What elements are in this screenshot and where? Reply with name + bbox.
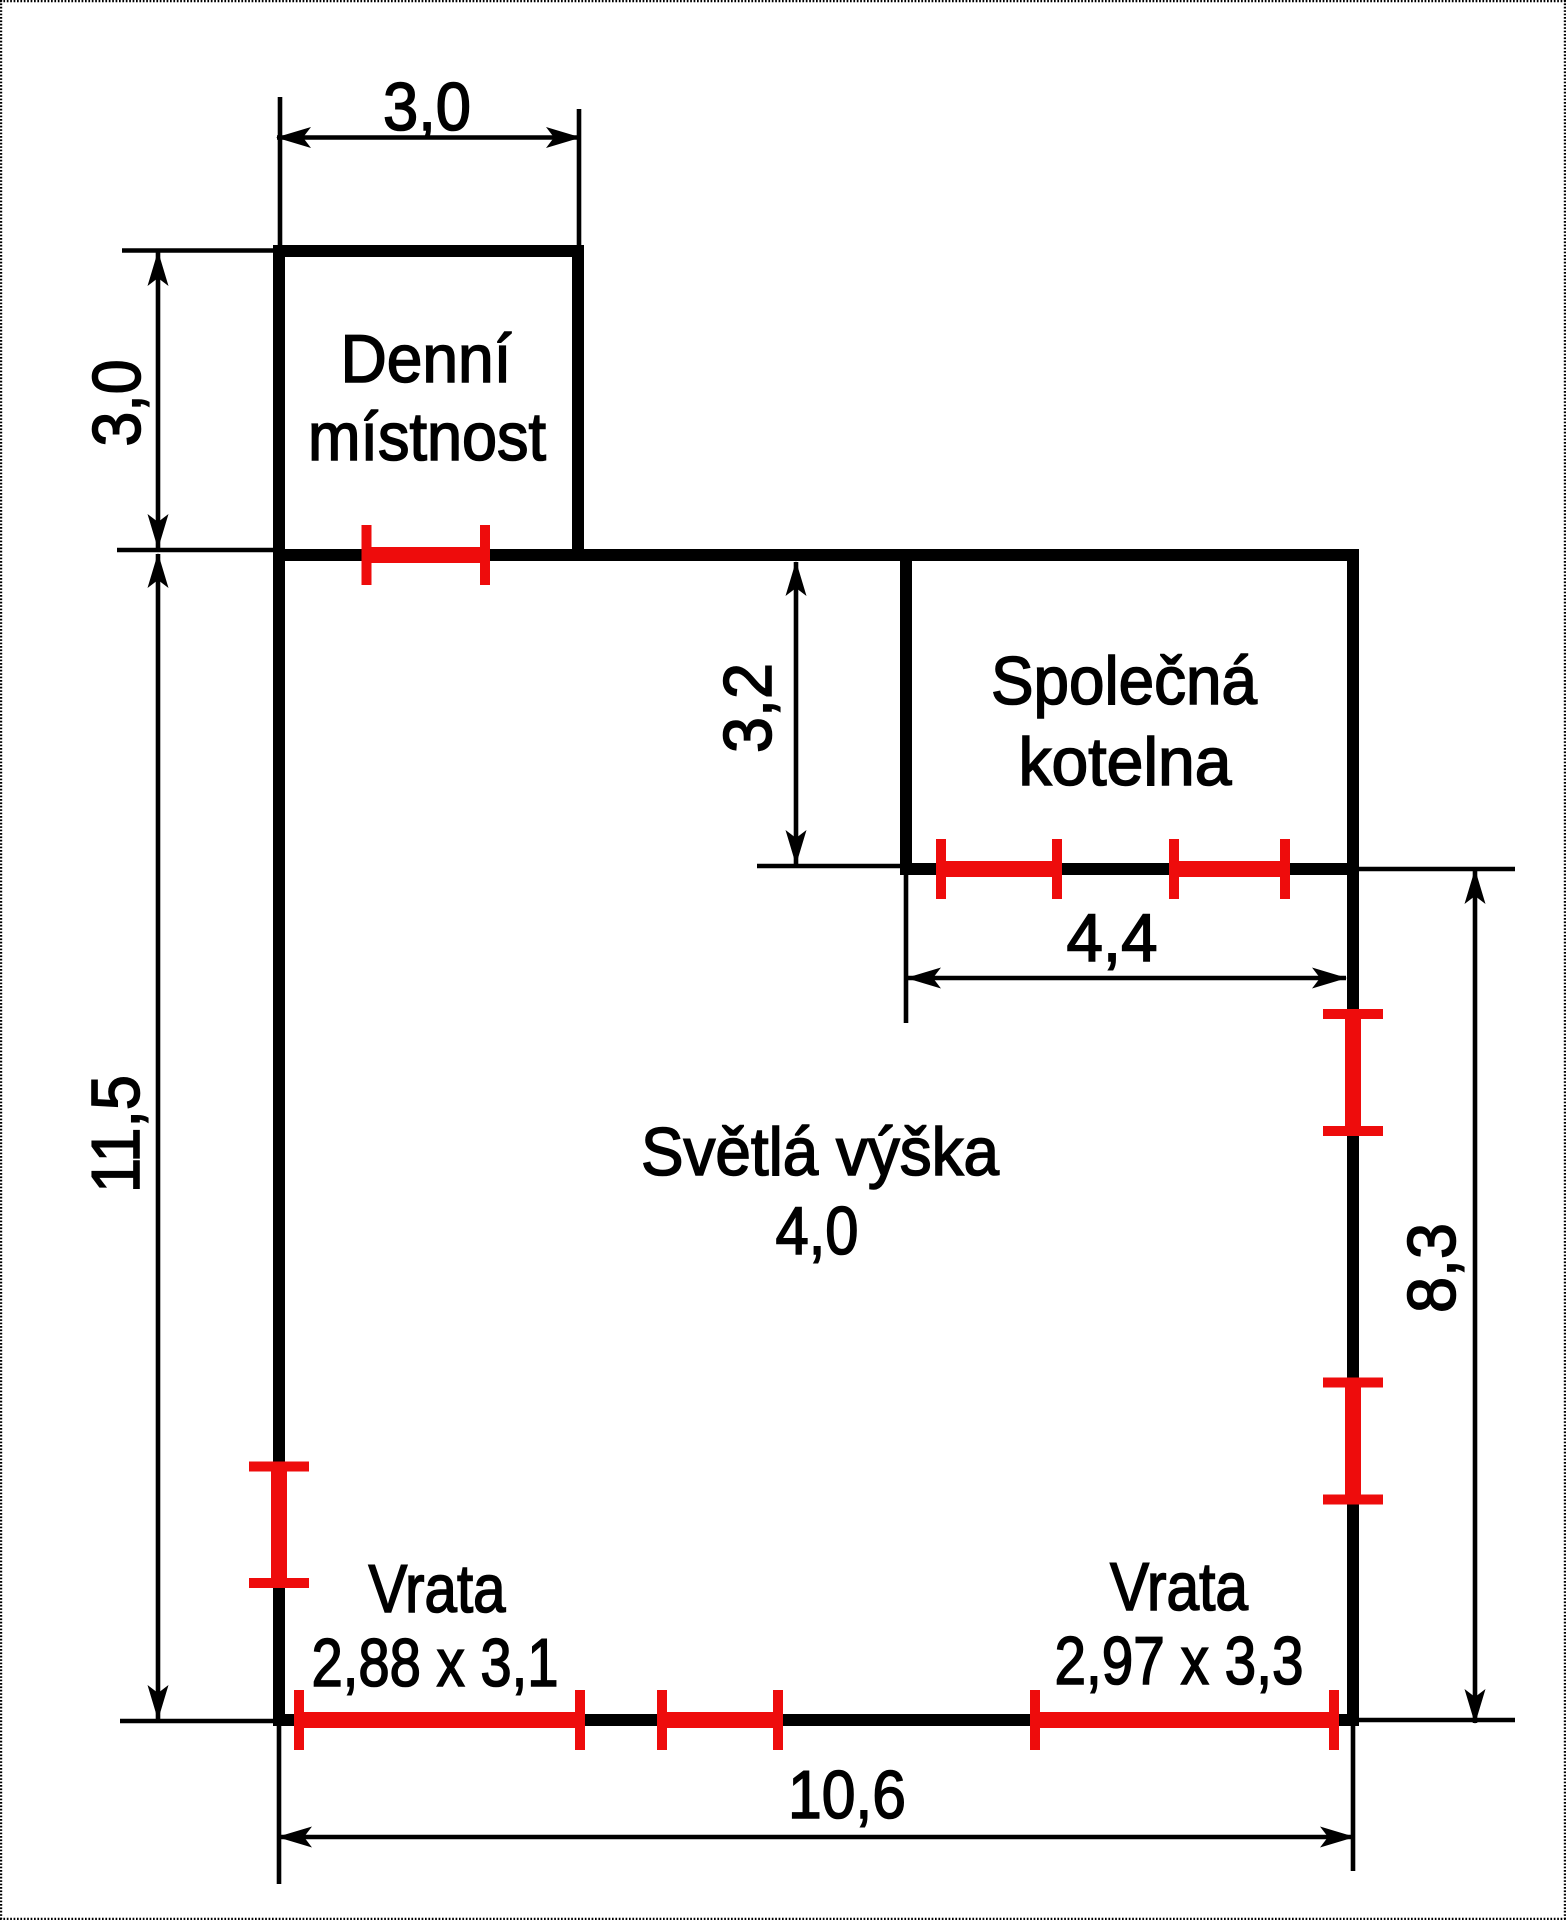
svg-text:3,2: 3,2 [710,663,786,753]
svg-text:Společná: Společná [991,643,1257,719]
svg-text:11,5: 11,5 [78,1075,154,1193]
svg-text:Vrata: Vrata [1110,1549,1248,1625]
svg-text:místnost: místnost [308,399,546,475]
svg-text:3,0: 3,0 [79,360,155,447]
svg-text:Denní: Denní [341,321,512,397]
svg-text:4,4: 4,4 [1067,900,1158,976]
svg-text:3,0: 3,0 [383,69,471,145]
svg-text:2,97 x 3,3: 2,97 x 3,3 [1055,1623,1304,1699]
svg-text:Světlá výška: Světlá výška [641,1114,999,1190]
svg-text:4,0: 4,0 [776,1193,859,1269]
svg-text:2,88 x 3,1: 2,88 x 3,1 [312,1625,559,1701]
svg-text:kotelna: kotelna [1019,724,1232,800]
svg-text:10,6: 10,6 [788,1757,906,1833]
svg-text:8,3: 8,3 [1394,1223,1470,1313]
svg-text:Vrata: Vrata [369,1551,506,1627]
